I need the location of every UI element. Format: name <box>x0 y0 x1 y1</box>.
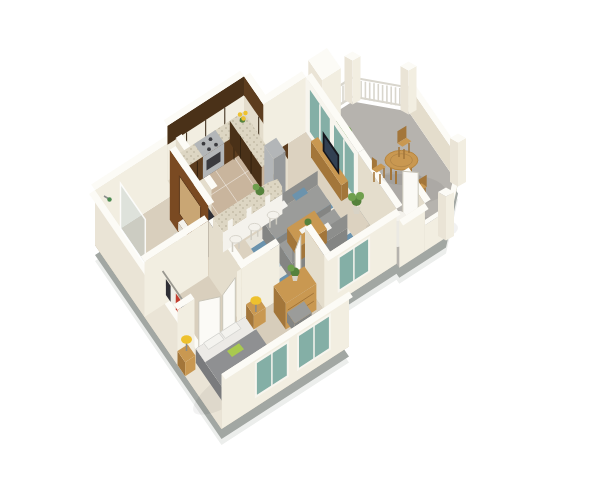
stool-seat <box>249 223 261 231</box>
patio-pillar <box>401 62 417 115</box>
yellow-flower <box>241 116 245 120</box>
table-lamp <box>250 296 261 304</box>
shower-head <box>107 197 111 201</box>
pillar-sw <box>438 192 446 241</box>
plant-foliage <box>356 192 364 200</box>
patio-pillar <box>450 134 466 187</box>
pillar-se <box>353 56 361 105</box>
pillar-se <box>458 138 466 187</box>
burner <box>209 137 213 141</box>
pillar-se <box>409 66 417 115</box>
dresser-plant <box>288 265 295 272</box>
pillar-sw <box>345 56 353 105</box>
table-lamp <box>181 335 192 343</box>
burner <box>202 142 206 146</box>
burner <box>207 147 211 151</box>
floor-plan-image <box>0 0 600 497</box>
stool-seat <box>230 236 242 244</box>
patio-pillar <box>345 52 361 105</box>
pillar-sw <box>401 66 409 115</box>
yellow-flower <box>243 111 247 115</box>
burner <box>214 143 218 147</box>
pillar-sw <box>450 138 458 187</box>
yellow-flower <box>238 112 242 116</box>
plant-pot <box>292 276 298 281</box>
pillar-se <box>446 192 454 241</box>
stool-seat <box>267 211 279 219</box>
floor-plan-render <box>0 0 600 497</box>
bar-plant <box>253 184 260 191</box>
plant-foliage <box>348 193 356 201</box>
closet-front-wall-seg2 <box>237 269 241 327</box>
patio-pillar <box>438 188 454 241</box>
